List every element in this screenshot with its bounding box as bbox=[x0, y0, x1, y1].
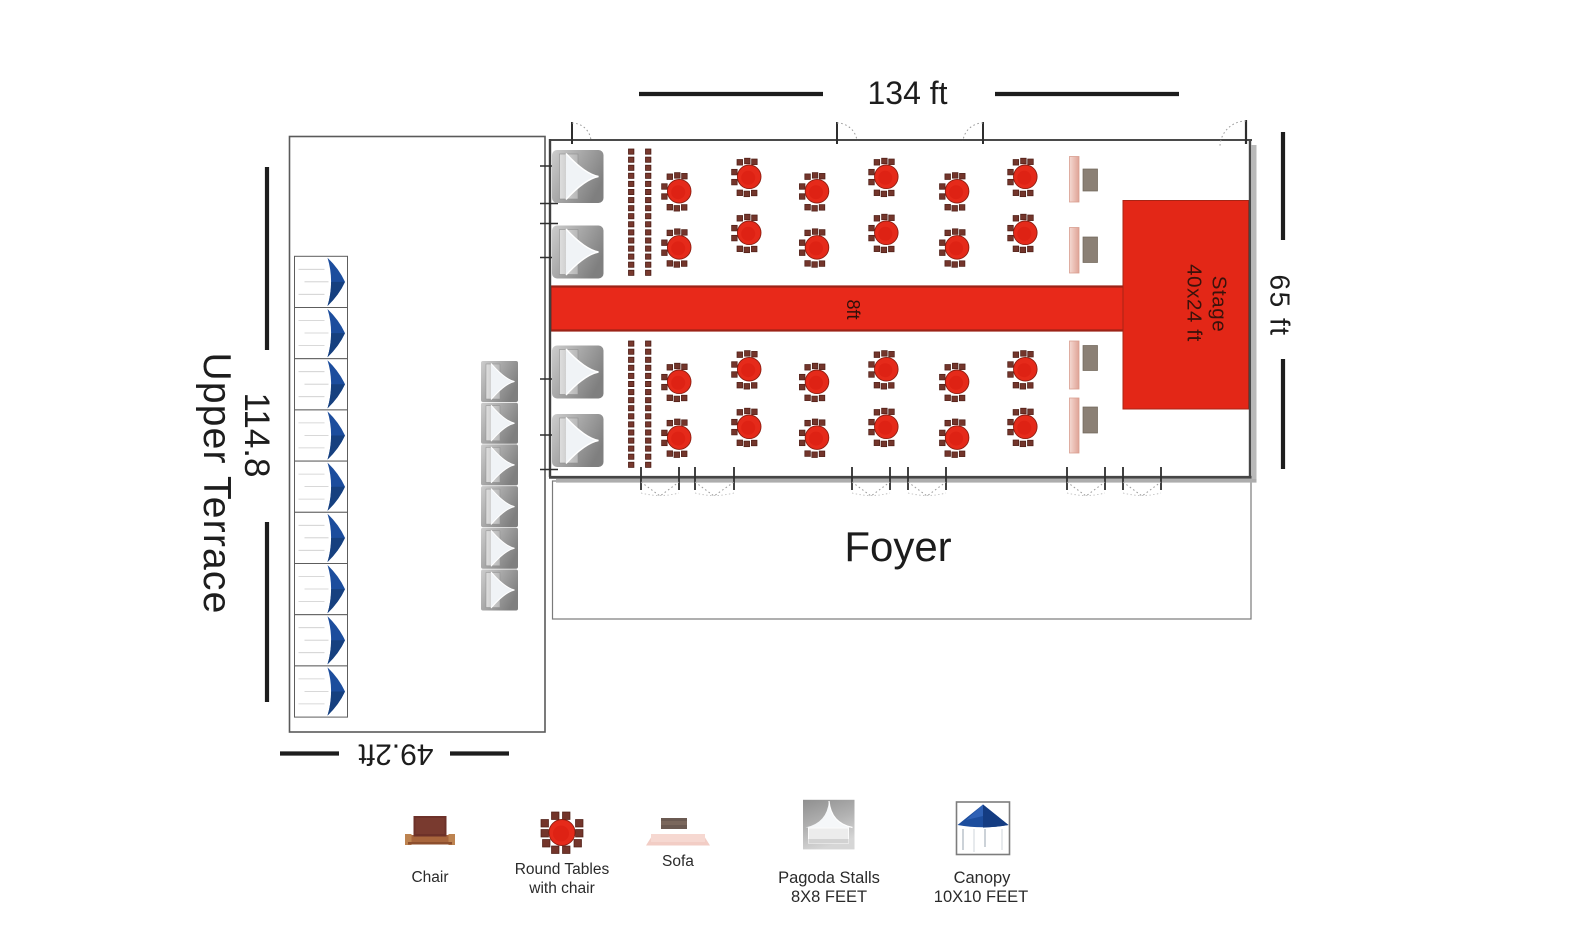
svg-text:Foyer: Foyer bbox=[844, 523, 951, 570]
svg-text:Stage: Stage bbox=[1208, 276, 1231, 333]
svg-text:134 ft: 134 ft bbox=[867, 75, 947, 111]
svg-text:with chair: with chair bbox=[528, 880, 594, 897]
svg-text:Round Tables: Round Tables bbox=[515, 861, 610, 878]
svg-text:Pagoda Stalls: Pagoda Stalls bbox=[778, 869, 880, 887]
svg-text:Sofa: Sofa bbox=[662, 853, 694, 870]
svg-text:Chair: Chair bbox=[411, 869, 448, 886]
svg-text:65 ft: 65 ft bbox=[1265, 275, 1296, 337]
svg-text:Upper Terrace: Upper Terrace bbox=[195, 353, 238, 615]
svg-text:40x24 ft: 40x24 ft bbox=[1183, 264, 1206, 342]
svg-text:10X10 FEET: 10X10 FEET bbox=[934, 888, 1028, 906]
svg-text:Canopy: Canopy bbox=[954, 869, 1012, 887]
svg-text:8ft: 8ft bbox=[843, 299, 863, 319]
svg-text:114.8: 114.8 bbox=[237, 393, 276, 478]
svg-text:8X8 FEET: 8X8 FEET bbox=[791, 888, 867, 906]
svg-text:49.2ft: 49.2ft bbox=[358, 738, 434, 771]
